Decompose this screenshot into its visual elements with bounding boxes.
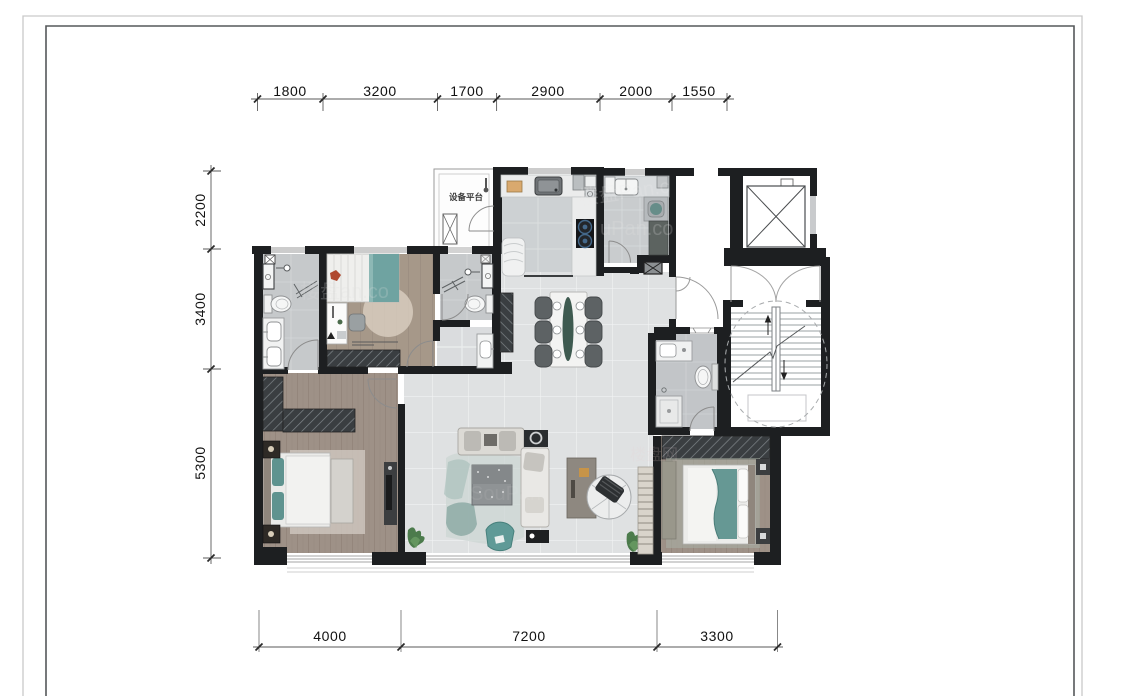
svg-text:2000: 2000: [619, 83, 653, 99]
svg-text:1550: 1550: [682, 83, 716, 99]
svg-text:2900: 2900: [531, 83, 565, 99]
svg-text:3400: 3400: [192, 292, 208, 326]
svg-text:楼盘网: 楼盘网: [630, 445, 678, 464]
svg-text:5300: 5300: [192, 446, 208, 480]
svg-text:2200: 2200: [192, 193, 208, 227]
svg-text:7200: 7200: [512, 628, 546, 644]
svg-text:SouPan: SouPan: [470, 483, 541, 505]
svg-text:4000: 4000: [313, 628, 347, 644]
svg-text:1700: 1700: [450, 83, 484, 99]
svg-text:uPan.co: uPan.co: [600, 218, 673, 240]
svg-text:1800: 1800: [273, 83, 307, 99]
svg-text:楼盘an.co: 楼盘an.co: [300, 280, 389, 303]
svg-text:3200: 3200: [363, 83, 397, 99]
svg-text:设备平台: 设备平台: [449, 192, 484, 202]
svg-text:3300: 3300: [700, 628, 734, 644]
